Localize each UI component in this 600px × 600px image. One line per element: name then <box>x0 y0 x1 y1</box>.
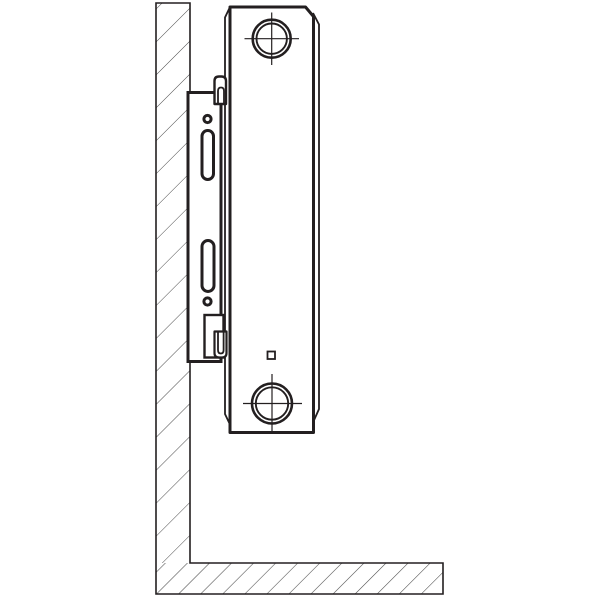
bracket-screw-hole-bottom <box>204 298 211 305</box>
bracket-slot-bottom <box>202 241 214 292</box>
bracket-screw-hole-top <box>204 115 211 122</box>
shapes-root <box>156 3 443 594</box>
diagram-svg <box>0 0 600 600</box>
drain-plug-square <box>268 352 276 360</box>
radiator-body <box>230 7 314 433</box>
bracket-slot-top <box>202 131 214 180</box>
floor-section-hatch <box>156 563 443 594</box>
diagram-page <box>0 0 600 600</box>
wall-section-hatch <box>156 3 190 563</box>
